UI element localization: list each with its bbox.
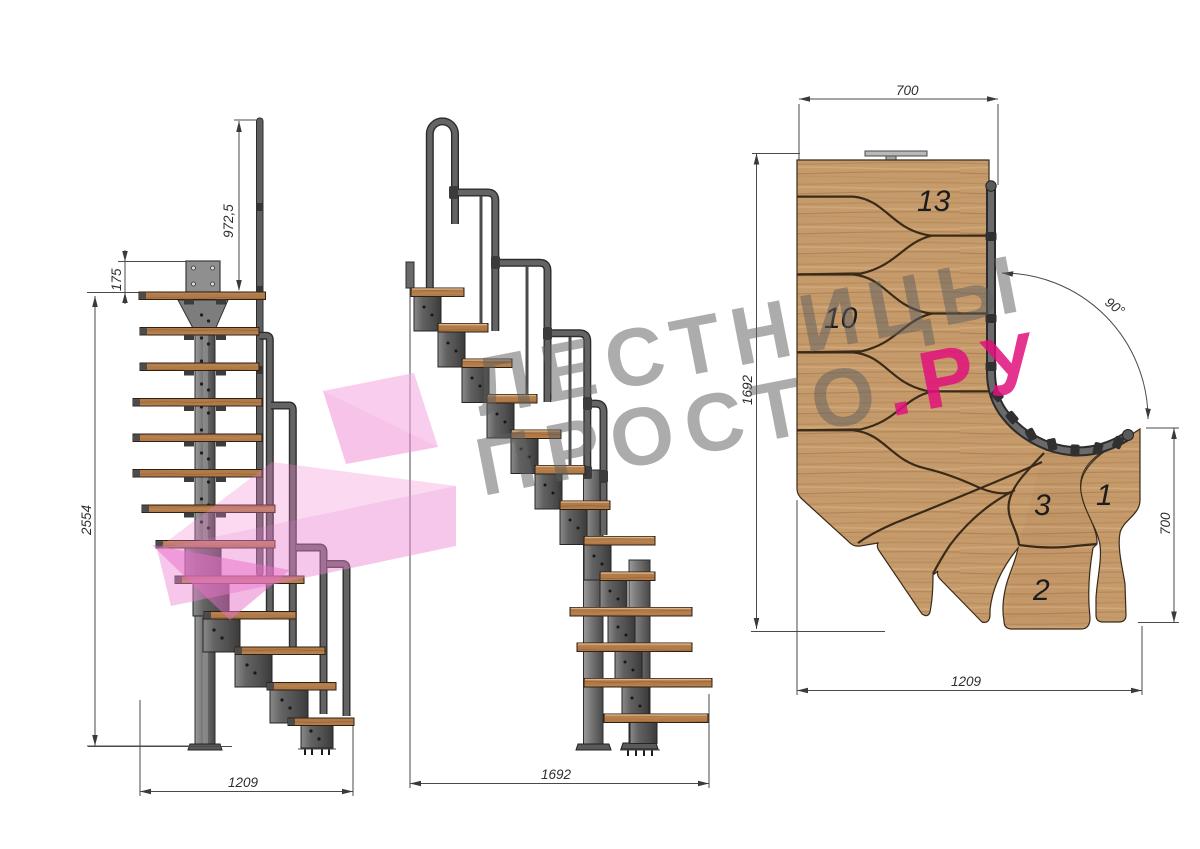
svg-text:1209: 1209 bbox=[228, 775, 259, 790]
svg-text:1: 1 bbox=[1096, 479, 1113, 512]
svg-text:2554: 2554 bbox=[79, 505, 94, 536]
svg-text:3: 3 bbox=[1034, 489, 1051, 522]
svg-text:700: 700 bbox=[896, 83, 919, 98]
svg-text:175: 175 bbox=[109, 268, 124, 291]
svg-text:2: 2 bbox=[1032, 574, 1050, 607]
svg-text:700: 700 bbox=[1158, 512, 1173, 535]
svg-text:972,5: 972,5 bbox=[221, 204, 236, 238]
svg-text:1692: 1692 bbox=[541, 767, 572, 782]
svg-text:13: 13 bbox=[917, 185, 951, 218]
svg-text:1209: 1209 bbox=[951, 674, 982, 689]
